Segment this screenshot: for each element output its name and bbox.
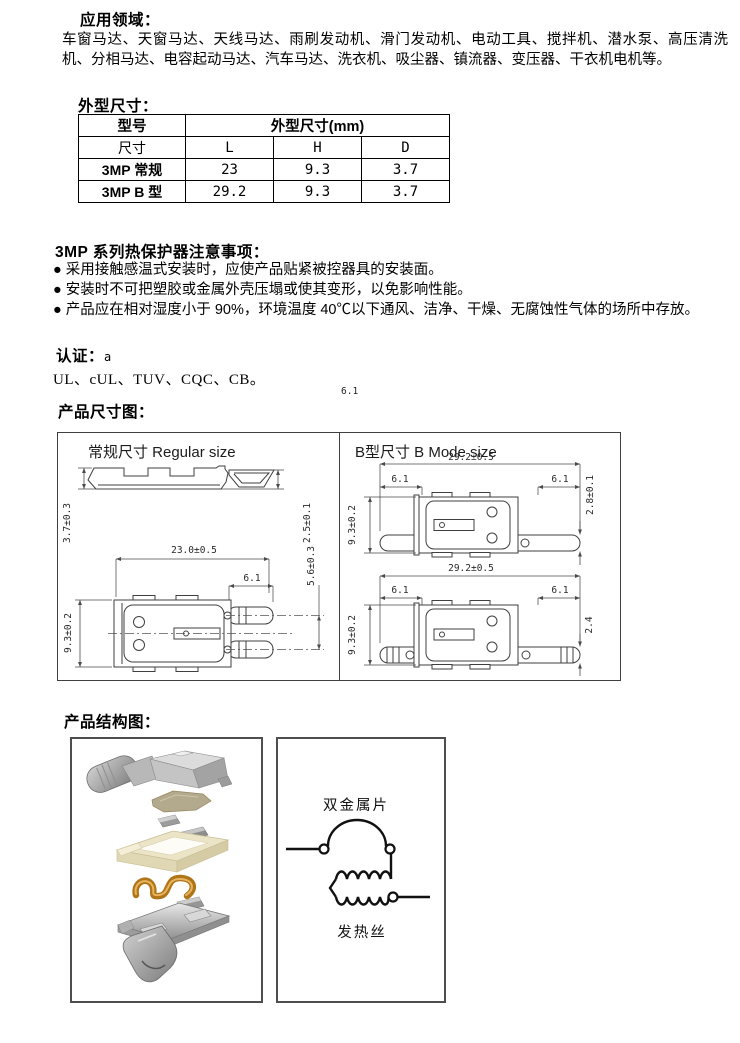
dim-terminal-length: 6.1: [243, 573, 260, 584]
circuit-diagram-box: 双金属片 发热丝: [276, 737, 446, 1003]
dim-b-bot-right-terminal: 6.1: [551, 585, 568, 596]
note-item: ● 产品应在相对湿度小于 90%，环境温度 40℃以下通风、洁净、干燥、无腐蚀性…: [53, 300, 699, 320]
heating-wire-part: [136, 878, 193, 896]
dim-b-bot-body-width: 9.3±0.2: [347, 615, 358, 655]
table-cell-L: 23: [186, 159, 274, 181]
notes-heading: 3MP 系列热保护器注意事项：: [55, 240, 269, 262]
table-header-dimensions: 外型尺寸(mm): [186, 115, 450, 137]
outline-dimensions-table: 型号 外型尺寸(mm) 尺寸 L H D 3MP 常规 23 9.3 3.7 3…: [78, 114, 450, 203]
applications-heading: 应用领域：: [80, 8, 160, 30]
table-cell-H: 9.3: [274, 181, 362, 203]
certification-body: UL、cUL、TUV、CQC、CB。: [53, 368, 265, 389]
heater-label: 发热丝: [337, 924, 387, 941]
table-cell-L: 29.2: [186, 181, 274, 203]
dim-b-top-left-terminal: 6.1: [391, 474, 408, 485]
cover-part: [83, 751, 232, 796]
dim-b-bot-length: 29.2±0.5: [448, 563, 494, 574]
table-cell-H: 9.3: [274, 159, 362, 181]
base-part: [118, 903, 229, 982]
regular-size-title: 常规尺寸 Regular size: [88, 444, 236, 461]
applications-body: 车窗马达、天窗马达、天线马达、雨刷发动机、滑门发动机、电动工具、搅拌机、潜水泵、…: [62, 30, 728, 70]
note-item: ● 采用接触感温式安装时，应使产品贴紧被控器具的安装面。: [53, 260, 699, 280]
notes-list: ● 采用接触感温式安装时，应使产品贴紧被控器具的安装面。 ● 安装时不可把塑胶或…: [53, 260, 699, 320]
regular-side-view: 3.7±0.3 2.5±0.1: [62, 466, 313, 543]
bimetal-label: 双金属片: [323, 797, 389, 814]
b-mode-top-view: 29.2±0.5 6.1 6.1: [347, 452, 596, 565]
dim-b-top-plate: 2.8±0.1: [585, 475, 596, 515]
exploded-view-box: [70, 737, 263, 1003]
circuit-diagram: 双金属片 发热丝: [278, 739, 444, 1001]
table-cell-D: 3.7: [362, 181, 450, 203]
certification-heading: 认证：a: [56, 344, 112, 366]
b-mode-bottom-view: 29.2±0.5 6.1 6.1: [347, 563, 595, 676]
table-row: 3MP 常规 23 9.3 3.7: [79, 159, 450, 181]
dim-b-top-length: 29.2±0.5: [448, 452, 494, 463]
dim-hook-height: 2.5±0.1: [302, 503, 313, 543]
table-cell-model: 3MP B 型: [79, 181, 186, 203]
regular-size-drawing: 常规尺寸 Regular size 3.7±0.3 2.5±0.1: [58, 433, 338, 678]
regular-size-panel: 常规尺寸 Regular size 3.7±0.3 2.5±0.1: [58, 433, 340, 680]
dim-b-bot-left-terminal: 6.1: [391, 585, 408, 596]
heater-symbol: [330, 872, 430, 905]
b-mode-drawing: B型尺寸 B Mode size 29.2±0.5 6.1 6.1: [340, 433, 621, 678]
outline-dimensions-heading: 外型尺寸：: [78, 94, 158, 116]
dim-length: 23.0±0.5: [171, 545, 217, 556]
table-subheader-L: L: [186, 137, 274, 159]
dim-b-bot-plate: 2.4: [584, 616, 595, 633]
certification-heading-label: 认证：: [56, 348, 104, 365]
dim-side-height: 3.7±0.3: [62, 503, 73, 543]
dim-body-width: 9.3±0.2: [63, 613, 74, 653]
structure-figure-heading: 产品结构图：: [64, 710, 160, 732]
table-subheader-D: D: [362, 137, 450, 159]
table-cell-D: 3.7: [362, 159, 450, 181]
contact-part: [158, 815, 180, 827]
certification-heading-suffix: a: [104, 350, 112, 364]
bimetal-part: [152, 791, 211, 812]
exploded-view-drawing: [72, 739, 261, 1001]
dim-terminal-pitch: 5.6±0.3: [306, 546, 317, 586]
note-item: ● 安装时不可把塑胶或金属外壳压塌或使其变形，以免影响性能。: [53, 280, 699, 300]
bimetal-symbol: [286, 820, 395, 879]
stray-number: 6.1: [341, 386, 358, 397]
datasheet-page: 应用领域： 车窗马达、天窗马达、天线马达、雨刷发动机、滑门发动机、电动工具、搅拌…: [0, 0, 740, 1043]
plastic-frame-part: [117, 831, 228, 872]
dim-b-top-right-terminal: 6.1: [551, 474, 568, 485]
dimension-figure-box: 常规尺寸 Regular size 3.7±0.3 2.5±0.1: [57, 432, 621, 681]
b-mode-panel: B型尺寸 B Mode size 29.2±0.5 6.1 6.1: [340, 433, 620, 680]
dim-b-top-body-width: 9.3±0.2: [347, 505, 358, 545]
dimension-figure-heading: 产品尺寸图：: [58, 400, 154, 422]
table-row: 3MP B 型 29.2 9.3 3.7: [79, 181, 450, 203]
table-cell-model: 3MP 常规: [79, 159, 186, 181]
table-header-model: 型号: [79, 115, 186, 137]
table-header-row: 型号 外型尺寸(mm): [79, 115, 450, 137]
regular-top-view: 23.0±0.5 6.1: [63, 545, 324, 672]
table-subheader-size: 尺寸: [79, 137, 186, 159]
table-subheader-row: 尺寸 L H D: [79, 137, 450, 159]
table-subheader-H: H: [274, 137, 362, 159]
